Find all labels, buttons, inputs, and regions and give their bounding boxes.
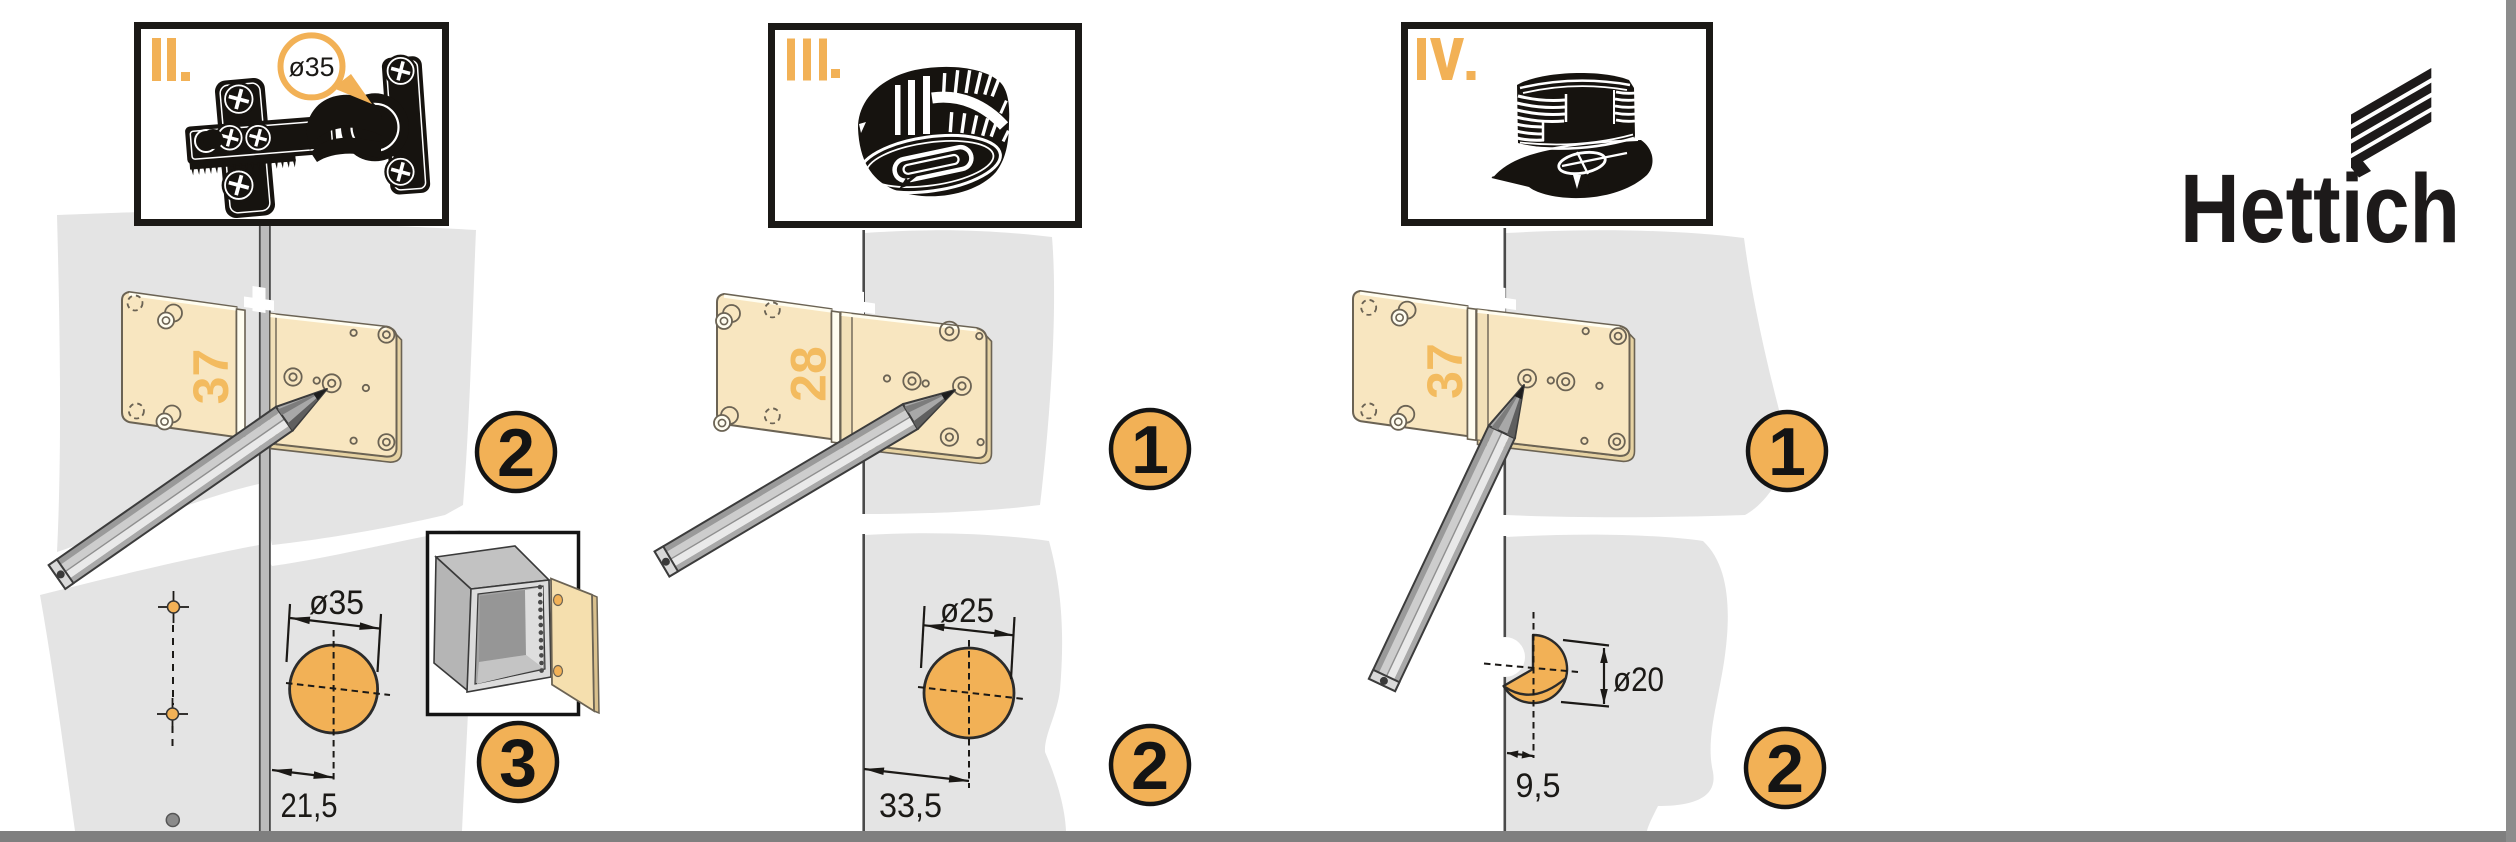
svg-text:21,5: 21,5	[281, 787, 338, 825]
svg-text:2: 2	[1766, 731, 1804, 807]
svg-text:ø35: ø35	[289, 52, 335, 82]
svg-text:ø20: ø20	[1613, 661, 1664, 699]
svg-text:ø25: ø25	[940, 592, 994, 630]
svg-text:2: 2	[497, 415, 535, 491]
svg-text:37: 37	[1417, 343, 1473, 399]
svg-text:2: 2	[1131, 728, 1169, 804]
svg-text:28: 28	[781, 346, 837, 402]
svg-text:1: 1	[1768, 414, 1806, 490]
svg-text:3: 3	[499, 725, 537, 801]
svg-text:ø35: ø35	[309, 584, 364, 622]
svg-text:Hettich: Hettich	[2180, 154, 2460, 263]
svg-text:33,5: 33,5	[879, 787, 942, 825]
svg-text:1: 1	[1131, 412, 1169, 488]
svg-text:37: 37	[183, 349, 239, 405]
svg-text:9,5: 9,5	[1516, 767, 1561, 805]
